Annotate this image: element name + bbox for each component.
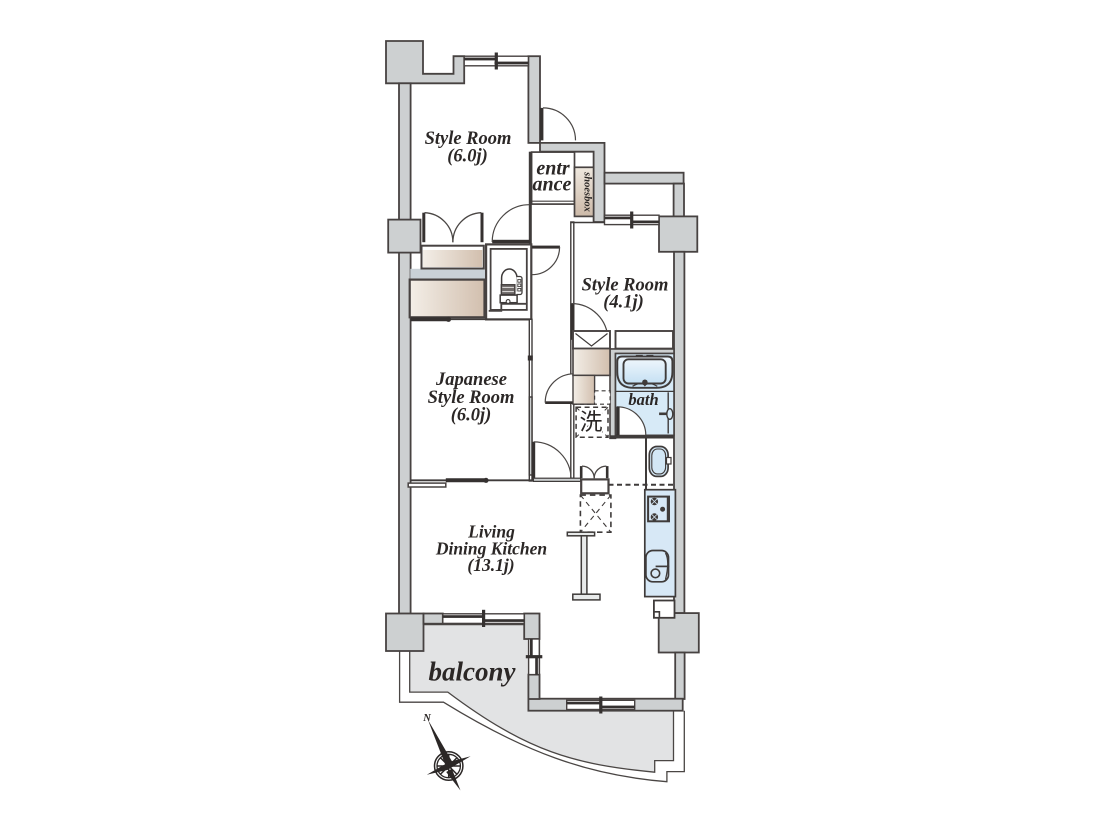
svg-text:shoesbox: shoesbox xyxy=(582,171,593,212)
svg-text:洗: 洗 xyxy=(580,410,603,435)
svg-text:bath: bath xyxy=(628,390,658,409)
svg-text:balcony: balcony xyxy=(429,657,517,687)
svg-text:ance: ance xyxy=(533,174,572,196)
svg-text:(6.0j): (6.0j) xyxy=(451,406,492,426)
svg-text:N: N xyxy=(422,713,431,724)
svg-text:(13.1j): (13.1j) xyxy=(467,555,514,575)
svg-text:(4.1j): (4.1j) xyxy=(603,293,644,313)
svg-text:Japanese: Japanese xyxy=(435,370,507,390)
svg-text:(6.0j): (6.0j) xyxy=(447,147,488,167)
